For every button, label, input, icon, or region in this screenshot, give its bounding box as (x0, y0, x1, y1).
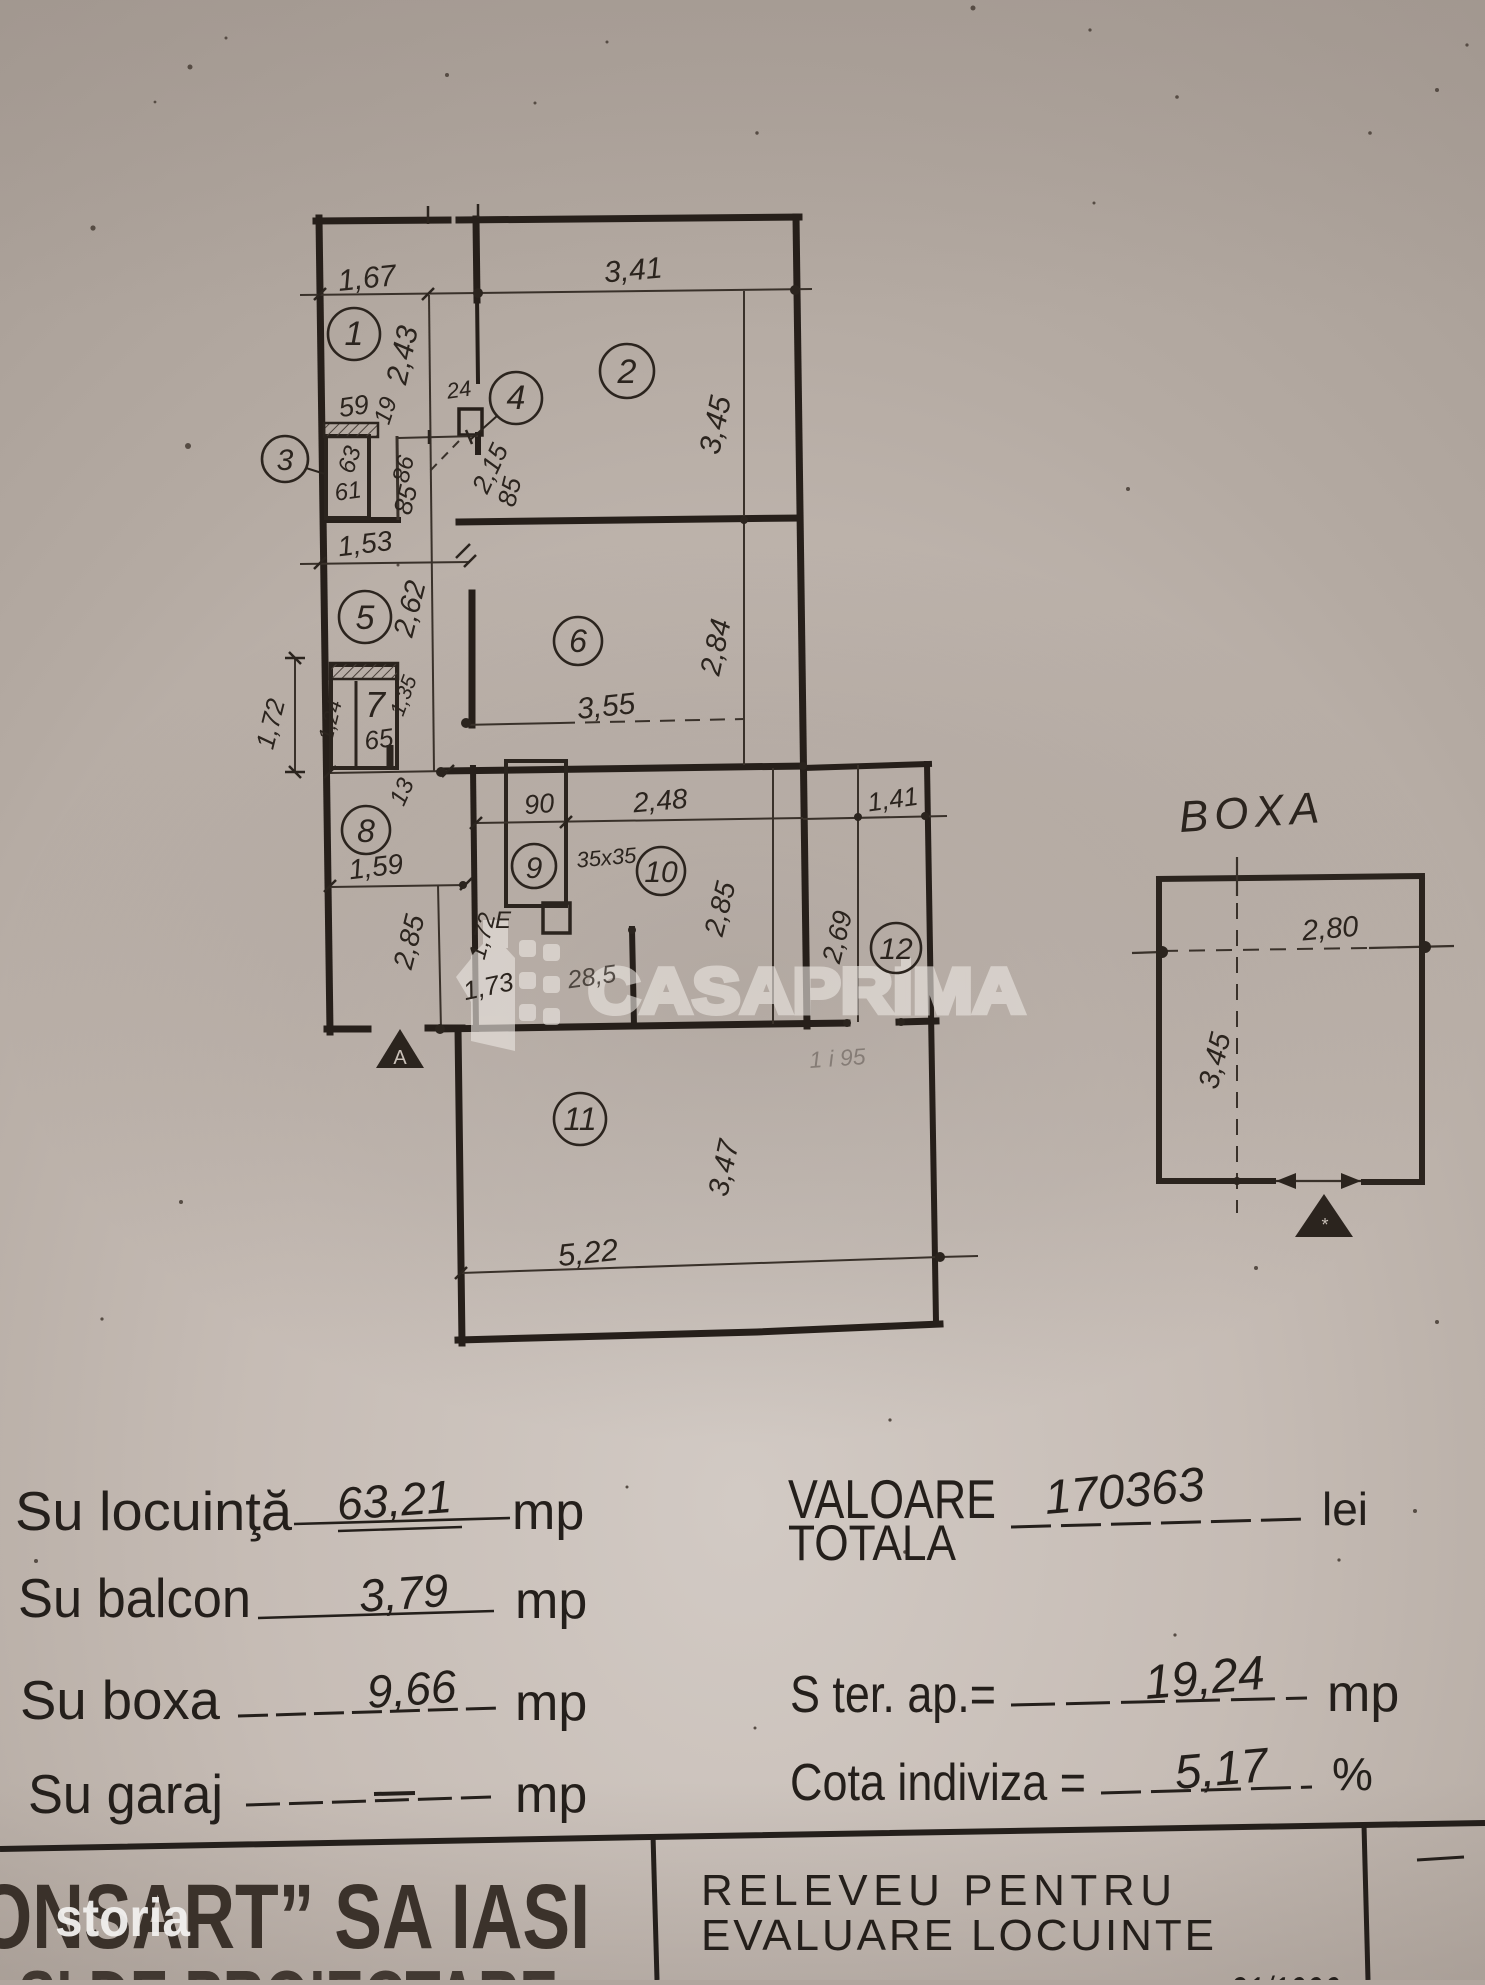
svg-text:90: 90 (523, 788, 556, 821)
svg-text:8: 8 (357, 813, 375, 849)
svg-text:65: 65 (362, 722, 395, 756)
svg-text:Su balcon: Su balcon (18, 1567, 251, 1629)
svg-text:11: 11 (563, 1101, 596, 1137)
svg-text:E: E (495, 907, 512, 934)
svg-text:mp: mp (512, 1483, 584, 1541)
svg-text:mp: mp (515, 1572, 587, 1630)
svg-text:1 i 95: 1 i 95 (808, 1043, 866, 1073)
svg-text:*: * (1321, 1215, 1328, 1235)
svg-text:7: 7 (365, 684, 387, 725)
svg-text:BOXA: BOXA (1177, 783, 1326, 842)
svg-text:EVALUARE LOCUINTE: EVALUARE LOCUINTE (701, 1911, 1214, 1960)
svg-text:CASAPRIMA: CASAPRIMA (588, 955, 1025, 1027)
svg-text:6: 6 (569, 623, 587, 659)
svg-text:61: 61 (333, 476, 363, 506)
svg-text:2,48: 2,48 (631, 783, 689, 819)
svg-text:10: 10 (644, 856, 678, 889)
svg-text:1,59: 1,59 (347, 848, 405, 885)
svg-text:3,41: 3,41 (603, 252, 664, 290)
svg-text:lei: lei (1322, 1483, 1368, 1535)
svg-text:12: 12 (879, 933, 913, 966)
svg-text:Su boxa: Su boxa (20, 1669, 220, 1731)
svg-text:1,67: 1,67 (336, 259, 399, 298)
svg-text:3: 3 (277, 444, 294, 477)
svg-text:24: 24 (444, 375, 473, 403)
svg-text:5,22: 5,22 (556, 1232, 620, 1273)
svg-text:Cota indiviza =: Cota indiviza = (790, 1754, 1086, 1812)
svg-text:1: 1 (345, 315, 364, 353)
svg-text:2: 2 (617, 353, 637, 391)
svg-text:S ter. ap.=: S ter. ap.= (790, 1666, 996, 1724)
svg-text:A: A (393, 1047, 407, 1069)
svg-text:SI DE PROIECTARE: SI DE PROIECTARE (18, 1954, 558, 1980)
svg-text:TOTALA: TOTALA (788, 1515, 957, 1571)
svg-text:21/1990: 21/1990 (1229, 1968, 1340, 1980)
svg-text:3,55: 3,55 (575, 687, 637, 726)
svg-text:mp: mp (515, 1766, 587, 1824)
svg-text:Su locuinţă: Su locuinţă (15, 1480, 292, 1542)
svg-text:4: 4 (507, 379, 526, 417)
svg-text:storia: storia (55, 1888, 191, 1948)
svg-text:5: 5 (356, 599, 375, 637)
svg-text:Su garaj: Su garaj (28, 1763, 223, 1825)
svg-text:%: % (1332, 1748, 1373, 1800)
svg-text:35x35: 35x35 (575, 842, 638, 872)
svg-text:mp: mp (515, 1674, 587, 1732)
svg-text:2,80: 2,80 (1300, 911, 1360, 948)
svg-text:9: 9 (526, 852, 543, 885)
svg-text:mp: mp (1327, 1665, 1399, 1723)
svg-text:59: 59 (337, 389, 371, 423)
